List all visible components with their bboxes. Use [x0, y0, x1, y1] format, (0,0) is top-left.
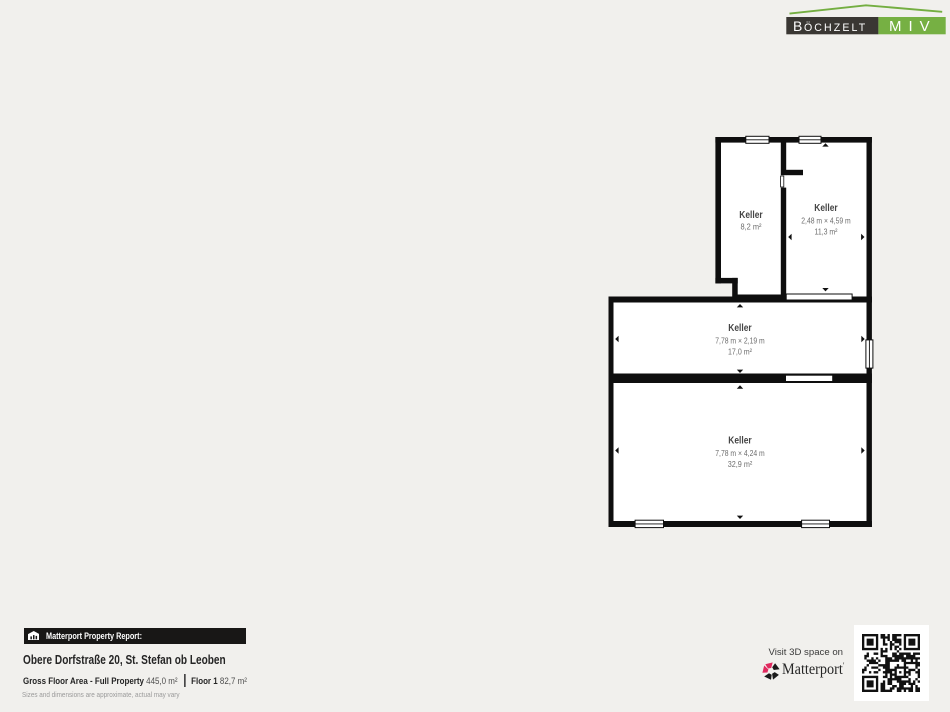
- svg-text:7,78 m × 2,19 m: 7,78 m × 2,19 m: [715, 336, 765, 346]
- svg-text:Keller: Keller: [814, 203, 837, 214]
- svg-text:Keller: Keller: [728, 436, 751, 447]
- svg-text:8,2 m²: 8,2 m²: [741, 222, 762, 232]
- svg-text:17,0 m²: 17,0 m²: [728, 347, 752, 357]
- svg-text:7,78 m × 4,24 m: 7,78 m × 4,24 m: [715, 448, 765, 458]
- svg-text:11,3 m²: 11,3 m²: [815, 227, 838, 237]
- svg-text:Keller: Keller: [739, 210, 762, 221]
- svg-text:2,48 m × 4,59 m: 2,48 m × 4,59 m: [801, 216, 851, 226]
- svg-text:32,9 m²: 32,9 m²: [728, 459, 753, 469]
- svg-text:MIV: MIV: [889, 18, 937, 35]
- svg-text:Keller: Keller: [728, 323, 751, 334]
